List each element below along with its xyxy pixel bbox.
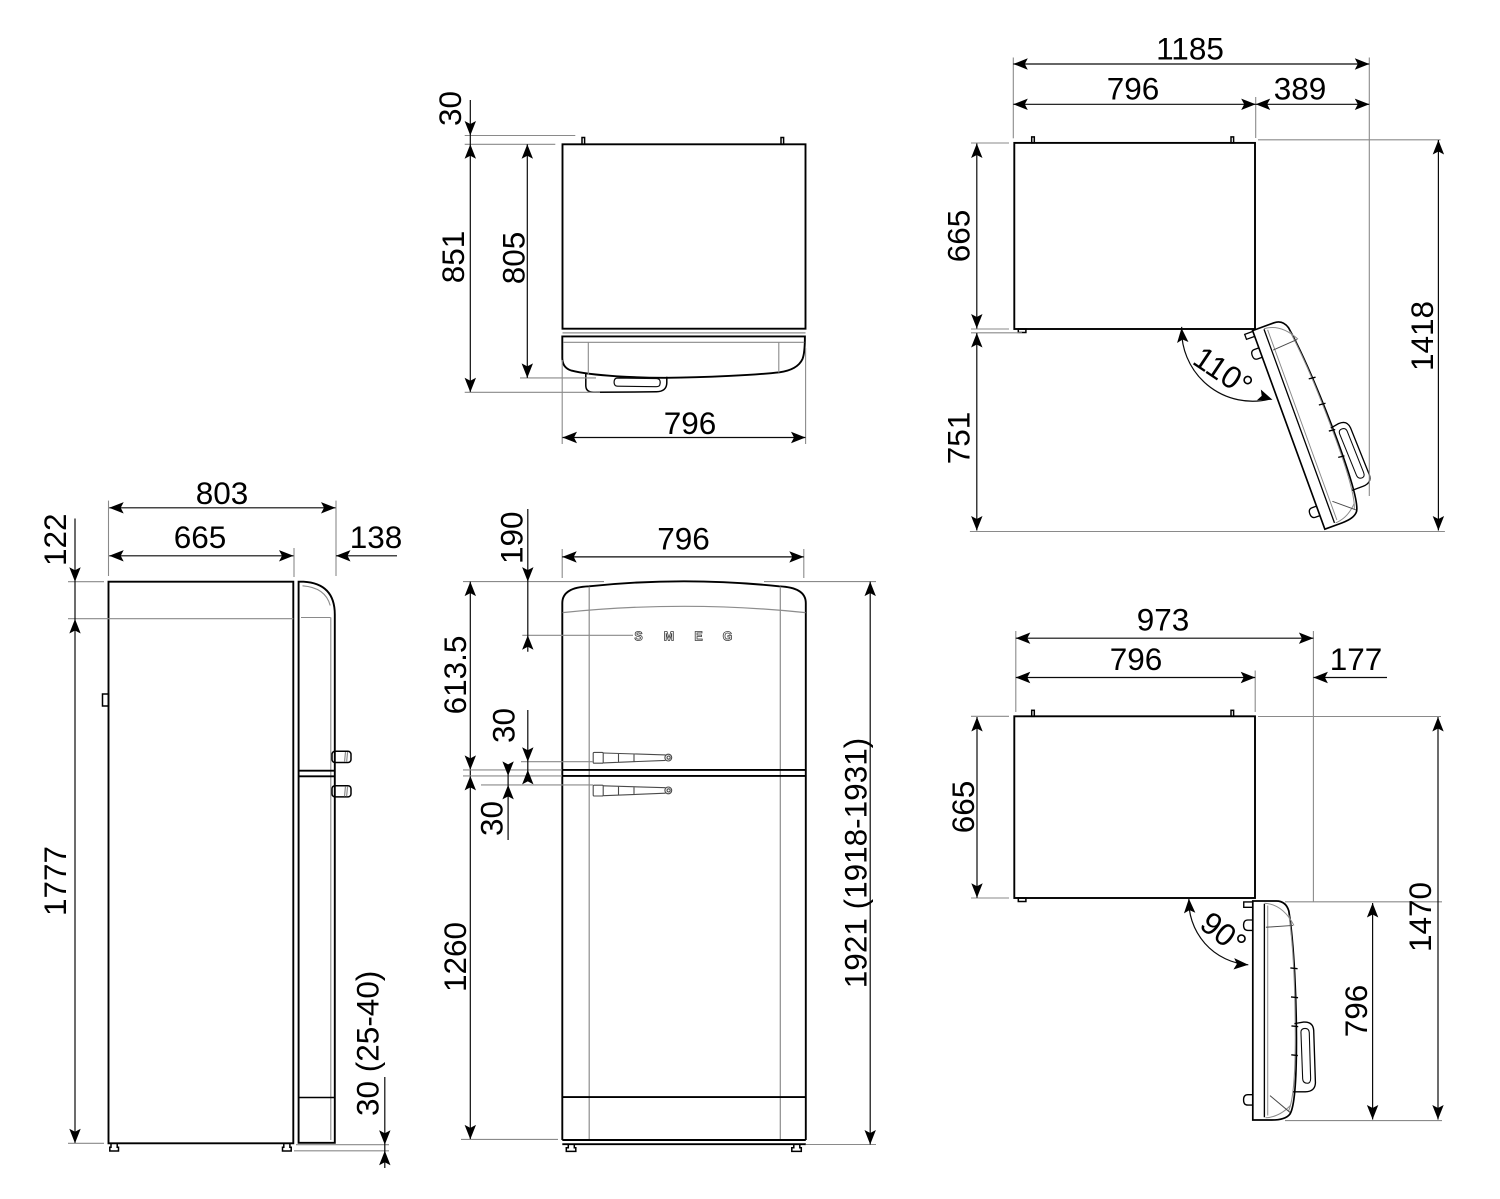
svg-text:190: 190 <box>494 511 530 564</box>
svg-text:803: 803 <box>196 475 249 511</box>
svg-text:665: 665 <box>174 519 227 555</box>
svg-text:751: 751 <box>941 412 977 465</box>
svg-text:973: 973 <box>1137 602 1190 638</box>
svg-text:805: 805 <box>496 232 532 285</box>
svg-text:122: 122 <box>37 513 73 566</box>
svg-text:796: 796 <box>657 521 710 557</box>
svg-text:1185: 1185 <box>1156 31 1224 67</box>
svg-text:851: 851 <box>435 231 471 284</box>
svg-text:1470: 1470 <box>1402 882 1438 952</box>
svg-text:796: 796 <box>1107 71 1160 107</box>
svg-text:E: E <box>694 630 702 644</box>
svg-text:665: 665 <box>941 210 977 263</box>
svg-text:30: 30 <box>474 801 510 836</box>
svg-text:30 (25-40): 30 (25-40) <box>350 971 386 1116</box>
svg-text:613.5: 613.5 <box>437 636 473 715</box>
svg-text:796: 796 <box>1338 985 1374 1038</box>
svg-text:138: 138 <box>350 519 403 555</box>
svg-text:M: M <box>664 630 674 644</box>
svg-text:30: 30 <box>486 708 522 743</box>
svg-text:665: 665 <box>945 781 981 834</box>
svg-text:S: S <box>634 630 642 644</box>
svg-text:1777: 1777 <box>37 846 73 916</box>
svg-text:G: G <box>723 630 733 644</box>
svg-text:796: 796 <box>664 405 717 441</box>
svg-text:1921 (1918-1931): 1921 (1918-1931) <box>838 738 874 988</box>
svg-text:796: 796 <box>1110 641 1163 677</box>
svg-text:1418: 1418 <box>1404 301 1440 371</box>
svg-text:177: 177 <box>1330 641 1383 677</box>
svg-text:389: 389 <box>1274 71 1327 107</box>
svg-text:30: 30 <box>432 91 468 126</box>
svg-text:1260: 1260 <box>437 922 473 992</box>
